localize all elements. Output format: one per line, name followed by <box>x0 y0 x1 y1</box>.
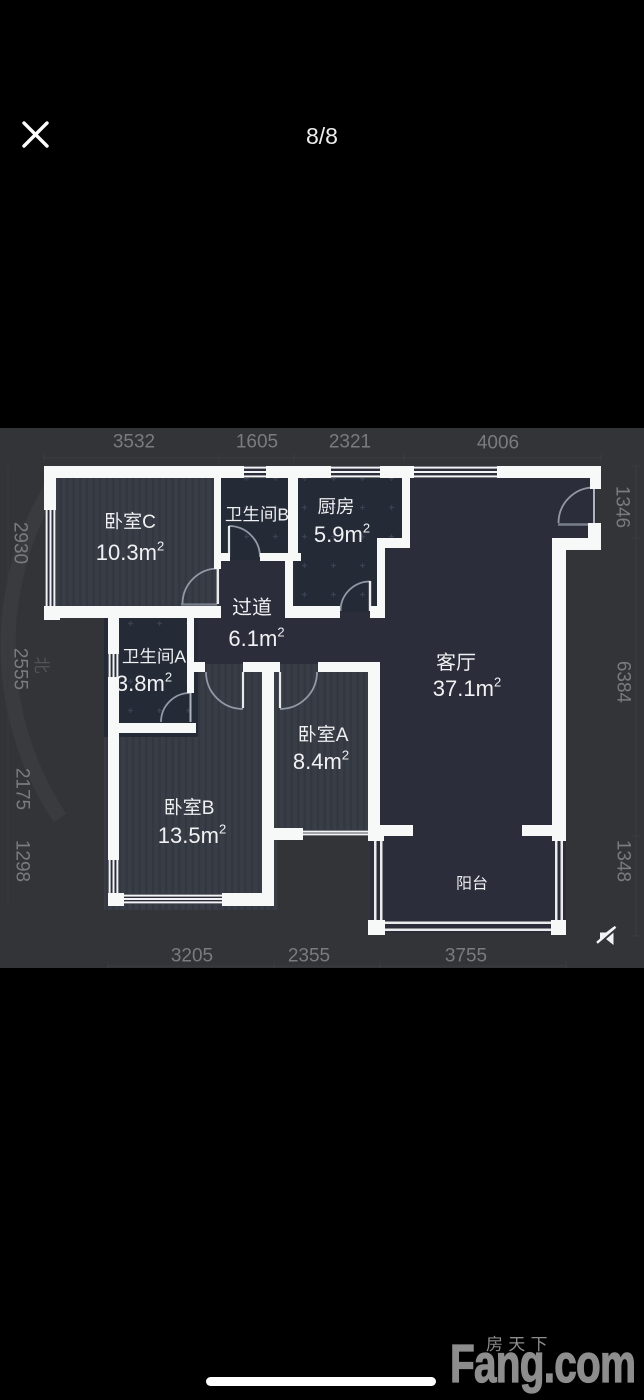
svg-text:2321: 2321 <box>329 432 371 453</box>
svg-text:37.1m2: 37.1m2 <box>433 675 501 701</box>
svg-text:3532: 3532 <box>113 432 155 453</box>
svg-text:A: A <box>174 646 186 666</box>
svg-text:1348: 1348 <box>613 840 634 882</box>
svg-text:5.9m2: 5.9m2 <box>314 521 370 547</box>
svg-text:13.5m2: 13.5m2 <box>158 822 226 848</box>
svg-text:B: B <box>202 798 215 819</box>
svg-text:3205: 3205 <box>171 946 213 967</box>
svg-text:2175: 2175 <box>12 768 33 810</box>
svg-text:4006: 4006 <box>477 433 519 454</box>
svg-text:6384: 6384 <box>613 661 634 704</box>
svg-text:3755: 3755 <box>445 946 487 967</box>
svg-text:10.3m2: 10.3m2 <box>96 539 164 565</box>
svg-text:1605: 1605 <box>236 432 278 453</box>
svg-text:1298: 1298 <box>12 840 33 882</box>
svg-text:2555: 2555 <box>10 648 31 690</box>
svg-text:A: A <box>336 725 349 746</box>
svg-text:6.1m2: 6.1m2 <box>228 625 284 651</box>
svg-text:2355: 2355 <box>288 946 330 967</box>
svg-text:3.8m2: 3.8m2 <box>116 670 172 696</box>
svg-text:C: C <box>142 512 156 533</box>
svg-text:B: B <box>277 504 289 524</box>
svg-text:8.4m2: 8.4m2 <box>293 748 349 774</box>
svg-text:2930: 2930 <box>10 522 31 564</box>
svg-text:1346: 1346 <box>612 486 633 528</box>
